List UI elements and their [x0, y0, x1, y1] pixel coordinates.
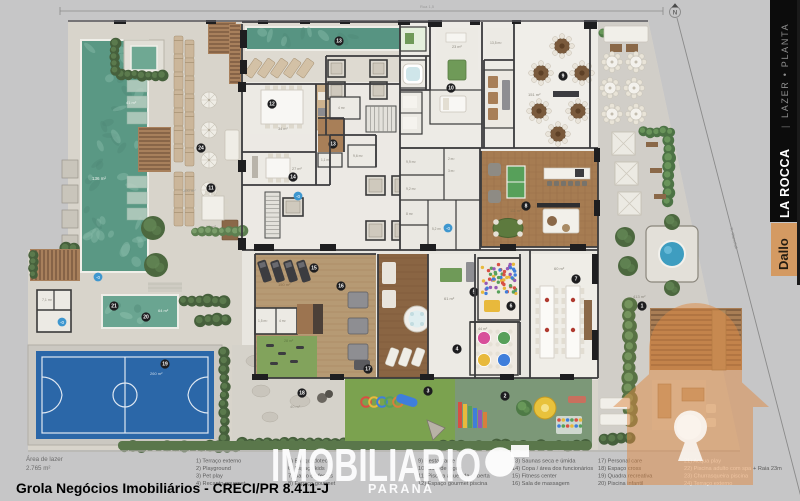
- svg-text:1,1 m²: 1,1 m²: [321, 158, 330, 162]
- svg-text:-0: -0: [296, 194, 300, 199]
- svg-text:N: N: [673, 10, 678, 17]
- svg-text:-0: -0: [446, 226, 450, 231]
- svg-text:27 m²: 27 m²: [292, 167, 302, 171]
- svg-text:61 m²: 61 m²: [444, 296, 455, 301]
- svg-text:150 m²: 150 m²: [278, 282, 291, 287]
- svg-text:15: 15: [311, 266, 317, 272]
- svg-text:7: 7: [575, 277, 578, 283]
- svg-text:9: 9: [562, 74, 565, 80]
- svg-text:12: 12: [269, 102, 275, 108]
- svg-text:8 m²: 8 m²: [406, 212, 414, 216]
- svg-text:PARANA: PARANA: [368, 482, 432, 496]
- svg-text:16) Sala de massagem: 16) Sala de massagem: [512, 481, 570, 487]
- svg-text:44 m²: 44 m²: [478, 327, 488, 331]
- svg-text:4: 4: [456, 347, 459, 353]
- svg-text:13,5 m²: 13,5 m²: [490, 41, 502, 45]
- svg-text:-0: -0: [96, 275, 100, 280]
- svg-text:15) Fitness center: 15) Fitness center: [512, 474, 557, 480]
- svg-text:-0: -0: [60, 320, 64, 325]
- svg-text:Rua 1,5: Rua 1,5: [420, 4, 435, 9]
- svg-text:151 m²: 151 m²: [528, 92, 541, 97]
- svg-text:24: 24: [198, 146, 204, 152]
- svg-text:2.765 m²: 2.765 m²: [26, 465, 50, 472]
- svg-text:60 m²: 60 m²: [554, 266, 565, 271]
- svg-text:16: 16: [338, 284, 344, 290]
- svg-text:4 m²: 4 m²: [338, 106, 346, 110]
- svg-text:9,2 m²: 9,2 m²: [406, 187, 416, 191]
- svg-text:18: 18: [299, 391, 305, 397]
- svg-text:17: 17: [365, 367, 371, 373]
- svg-text:23 m²: 23 m²: [452, 45, 462, 49]
- svg-text:3 m²: 3 m²: [448, 169, 454, 173]
- svg-text:2) Playground: 2) Playground: [196, 466, 231, 472]
- svg-text:136 m²: 136 m²: [92, 176, 107, 181]
- svg-text:28 m²: 28 m²: [284, 339, 294, 343]
- svg-text:7,1 m²: 7,1 m²: [42, 298, 53, 302]
- svg-text:1,5 m²: 1,5 m²: [258, 319, 268, 323]
- svg-text:2 m²: 2 m²: [448, 157, 454, 161]
- svg-text:Grola Negócios Imobiliários -: Grola Negócios Imobiliários - CRECI/PR 8…: [16, 480, 329, 496]
- svg-text:5,2 m²: 5,2 m²: [432, 227, 441, 231]
- svg-text:34 m²: 34 m²: [278, 127, 288, 131]
- svg-text:19: 19: [162, 362, 168, 368]
- svg-text:LA ROCCA: LA ROCCA: [778, 148, 792, 218]
- svg-text:300 m²: 300 m²: [183, 188, 196, 193]
- svg-text:1) Terraço externo: 1) Terraço externo: [196, 459, 241, 465]
- svg-text:LAZER • PLANTA: LAZER • PLANTA: [780, 23, 790, 118]
- svg-text:13: 13: [330, 142, 336, 148]
- svg-text:3) Pet play: 3) Pet play: [196, 474, 223, 480]
- svg-text:+ Raia 23m: + Raia 23m: [753, 466, 782, 472]
- svg-text:1: 1: [641, 304, 644, 310]
- svg-text:41 m²: 41 m²: [126, 100, 137, 105]
- svg-text:14: 14: [290, 175, 296, 181]
- svg-text:8: 8: [525, 204, 528, 210]
- svg-text:6: 6: [510, 304, 513, 310]
- svg-text:10: 10: [448, 86, 454, 92]
- svg-text:9,6 m²: 9,6 m²: [353, 154, 363, 158]
- svg-text:111 m²: 111 m²: [510, 209, 522, 213]
- svg-text:9,9 m²: 9,9 m²: [406, 160, 416, 164]
- svg-text:13) Saunas seca e úmida: 13) Saunas seca e úmida: [512, 459, 576, 465]
- svg-text:4 m²: 4 m²: [279, 319, 286, 323]
- svg-text:|: |: [780, 126, 790, 128]
- svg-text:Área de lazer: Área de lazer: [26, 456, 63, 463]
- svg-text:40 m²: 40 m²: [290, 404, 301, 409]
- svg-text:21: 21: [111, 304, 117, 310]
- svg-text:260 m²: 260 m²: [150, 371, 163, 376]
- svg-text:13: 13: [336, 39, 342, 45]
- svg-text:2: 2: [504, 394, 507, 400]
- svg-text:64 m²: 64 m²: [158, 308, 169, 313]
- svg-text:14) Copa / área dos funcionári: 14) Copa / área dos funcionários: [512, 466, 593, 472]
- svg-text:413 m²: 413 m²: [633, 294, 646, 299]
- svg-text:11: 11: [208, 186, 214, 192]
- svg-text:3: 3: [427, 389, 430, 395]
- svg-text:20: 20: [143, 315, 149, 321]
- svg-text:Dallo: Dallo: [776, 238, 791, 270]
